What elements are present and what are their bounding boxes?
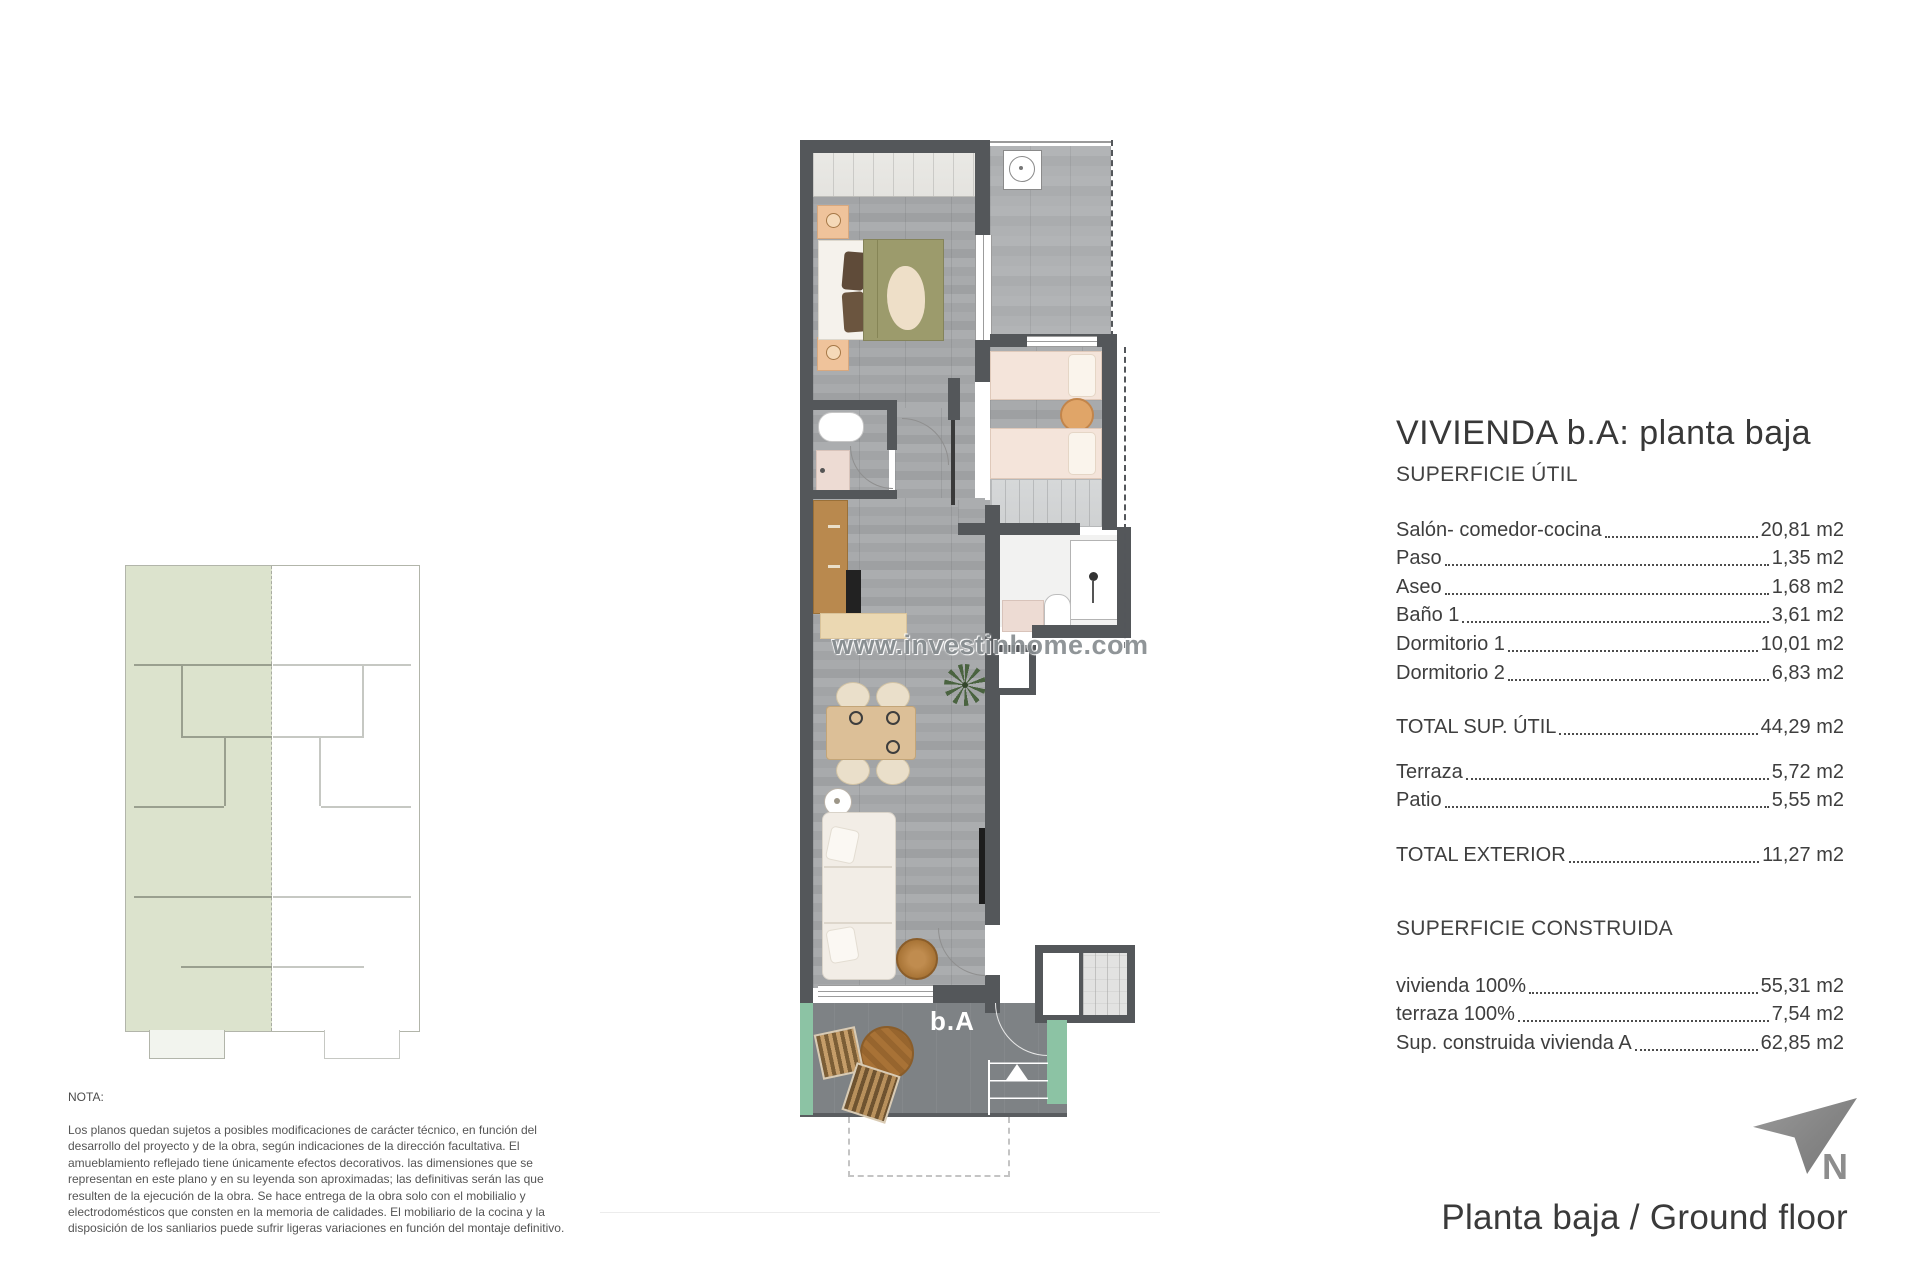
dotted-leader [1508, 679, 1769, 681]
chair-back-ring [886, 711, 900, 725]
storeroom-cell [1043, 953, 1079, 1015]
sofa-cushion-line [824, 866, 892, 868]
chair-back-ring [886, 740, 900, 754]
superficie-construida-heading: SUPERFICIE CONSTRUIDA [1396, 917, 1844, 941]
wall [887, 400, 897, 450]
lamp-icon [826, 213, 841, 228]
window [1027, 336, 1097, 347]
terrace-window [818, 985, 933, 997]
chair-back-ring [849, 711, 863, 725]
bed-duvet-seam [877, 240, 878, 338]
planter-strip [800, 1003, 813, 1115]
dashed-extension-outline [848, 1117, 1010, 1177]
closet-strip [990, 479, 1102, 527]
plant-center-dot [962, 682, 968, 688]
wardrobe [813, 152, 975, 197]
wall [933, 985, 1000, 1003]
dotted-leader [1445, 806, 1769, 808]
terrace-unit-label: b.A [930, 1006, 975, 1037]
shower-stem [1092, 581, 1094, 603]
dotted-leader [1559, 733, 1757, 735]
dotted-leader [1518, 1020, 1769, 1022]
property-line [1111, 140, 1113, 347]
area-row: Salón- comedor-cocina 20,81 m2 [1396, 513, 1844, 542]
dotted-leader [1508, 650, 1758, 652]
property-line [1124, 347, 1126, 648]
bed-blanket [887, 266, 925, 330]
superficie-util-heading: SUPERFICIE ÚTIL [1396, 463, 1844, 487]
dotted-leader [1635, 1049, 1758, 1051]
bathtub [818, 412, 864, 442]
wall [1102, 347, 1117, 530]
area-row: Dormitorio 2 6,83 m2 [1396, 656, 1844, 685]
plan-image-edge-line [600, 1212, 1160, 1213]
watermark: www.investinhome.com [832, 630, 1149, 661]
pouf [1060, 398, 1094, 432]
total-util-row: TOTAL SUP. ÚTIL 44,29 m2 [1396, 711, 1844, 740]
sofa-cushion-line [824, 922, 892, 924]
window [975, 235, 992, 340]
wall [985, 505, 1000, 925]
dotted-leader [1445, 564, 1769, 566]
dotted-leader [1569, 861, 1759, 863]
area-row: terraza 100% 7,54 m2 [1396, 998, 1844, 1027]
area-row: Aseo 1,68 m2 [1396, 570, 1844, 599]
note-body: Los planos quedan sujetos a posibles mod… [68, 1122, 582, 1237]
bed-pillow [1068, 354, 1096, 397]
dotted-leader [1529, 992, 1758, 994]
note-heading: NOTA: [68, 1090, 104, 1104]
stairs-up-arrow-icon [1006, 1064, 1028, 1080]
wall [948, 378, 960, 420]
wall [800, 140, 813, 1013]
dotted-leader [1466, 778, 1769, 780]
area-row: Baño 1 3,61 m2 [1396, 599, 1844, 628]
faucet-dot [820, 468, 825, 473]
dotted-leader [1445, 593, 1769, 595]
patio-top-line [990, 141, 1111, 143]
area-row: Paso 1,35 m2 [1396, 542, 1844, 571]
coffee-table [896, 938, 938, 980]
sliding-door [951, 420, 955, 505]
dotted-leader [1605, 536, 1758, 538]
kitchen-handle [828, 565, 840, 568]
planter-strip [1047, 1020, 1067, 1104]
area-row: Patio 5,55 m2 [1396, 784, 1844, 813]
shower-head-dot [1089, 572, 1098, 581]
storeroom-tiled-cell [1083, 953, 1127, 1015]
dining-table [826, 706, 916, 760]
north-label: N [1822, 1146, 1848, 1188]
lamp-icon [826, 345, 841, 360]
total-exterior-row: TOTAL EXTERIOR 11,27 m2 [1396, 838, 1844, 867]
title-block: VIVIENDA b.A: planta baja SUPERFICIE ÚTI… [1396, 414, 1844, 1055]
wall [958, 523, 1080, 535]
area-row: Sup. construida vivienda A 62,85 m2 [1396, 1026, 1844, 1055]
area-row: Dormitorio 1 10,01 m2 [1396, 627, 1844, 656]
kitchen-appliance [846, 570, 861, 614]
kitchen-handle [828, 525, 840, 528]
dotted-leader [1462, 621, 1768, 623]
kitchen-cabinets [813, 500, 848, 614]
area-row: vivienda 100% 55,31 m2 [1396, 969, 1844, 998]
dining-chair [876, 756, 910, 785]
wall [975, 340, 990, 382]
floor-caption: Planta baja / Ground floor [1441, 1198, 1848, 1238]
dining-chair [836, 756, 870, 785]
wall [800, 140, 990, 153]
ac-unit-fan-dot [1019, 166, 1023, 170]
wall [975, 140, 990, 235]
wall [812, 490, 897, 499]
area-row: Terraza 5,72 m2 [1396, 755, 1844, 784]
side-table-dot [834, 798, 840, 804]
bed-pillow [1068, 432, 1096, 475]
wall [812, 400, 897, 410]
page-title: VIVIENDA b.A: planta baja [1396, 414, 1844, 453]
sofa-pillow [825, 926, 859, 965]
